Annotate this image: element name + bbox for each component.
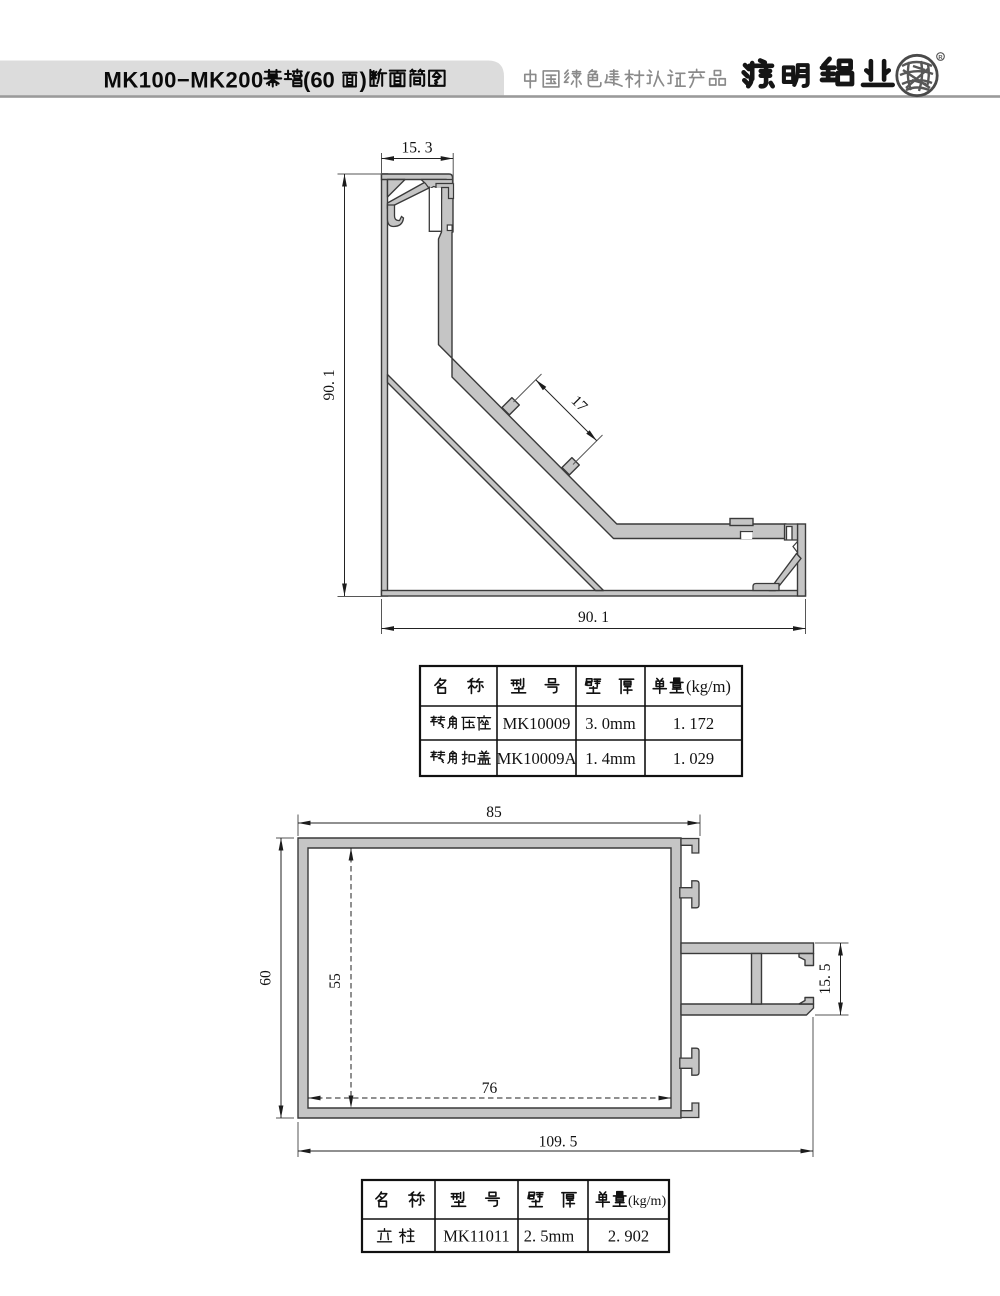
svg-text:(60: (60 [303,67,335,92]
svg-text:15. 5: 15. 5 [817,963,834,994]
svg-text:): ) [360,67,367,92]
svg-text:R: R [938,55,943,61]
svg-text:109. 5: 109. 5 [539,1134,578,1151]
svg-text:90. 1: 90. 1 [578,609,609,626]
svg-text:1. 4mm: 1. 4mm [585,749,636,768]
svg-text:60: 60 [258,970,275,986]
svg-text:1. 172: 1. 172 [673,714,714,733]
svg-text:MK100−MK200: MK100−MK200 [104,67,264,92]
svg-text:15. 3: 15. 3 [402,140,433,157]
svg-text:3. 0mm: 3. 0mm [585,714,636,733]
svg-text:2. 5mm: 2. 5mm [524,1227,575,1246]
svg-text:76: 76 [482,1080,498,1097]
svg-text:(kg/m): (kg/m) [628,1194,666,1209]
svg-text:2. 902: 2. 902 [608,1227,649,1246]
svg-text:85: 85 [486,804,502,821]
svg-text:17: 17 [568,392,591,415]
svg-text:MK11011: MK11011 [443,1227,510,1246]
svg-text:90. 1: 90. 1 [321,370,338,401]
svg-text:MK10009A: MK10009A [497,749,577,768]
svg-text:1. 029: 1. 029 [673,749,714,768]
svg-text:55: 55 [327,973,344,989]
svg-text:MK10009: MK10009 [503,714,571,733]
svg-text:(kg/m): (kg/m) [686,677,731,696]
